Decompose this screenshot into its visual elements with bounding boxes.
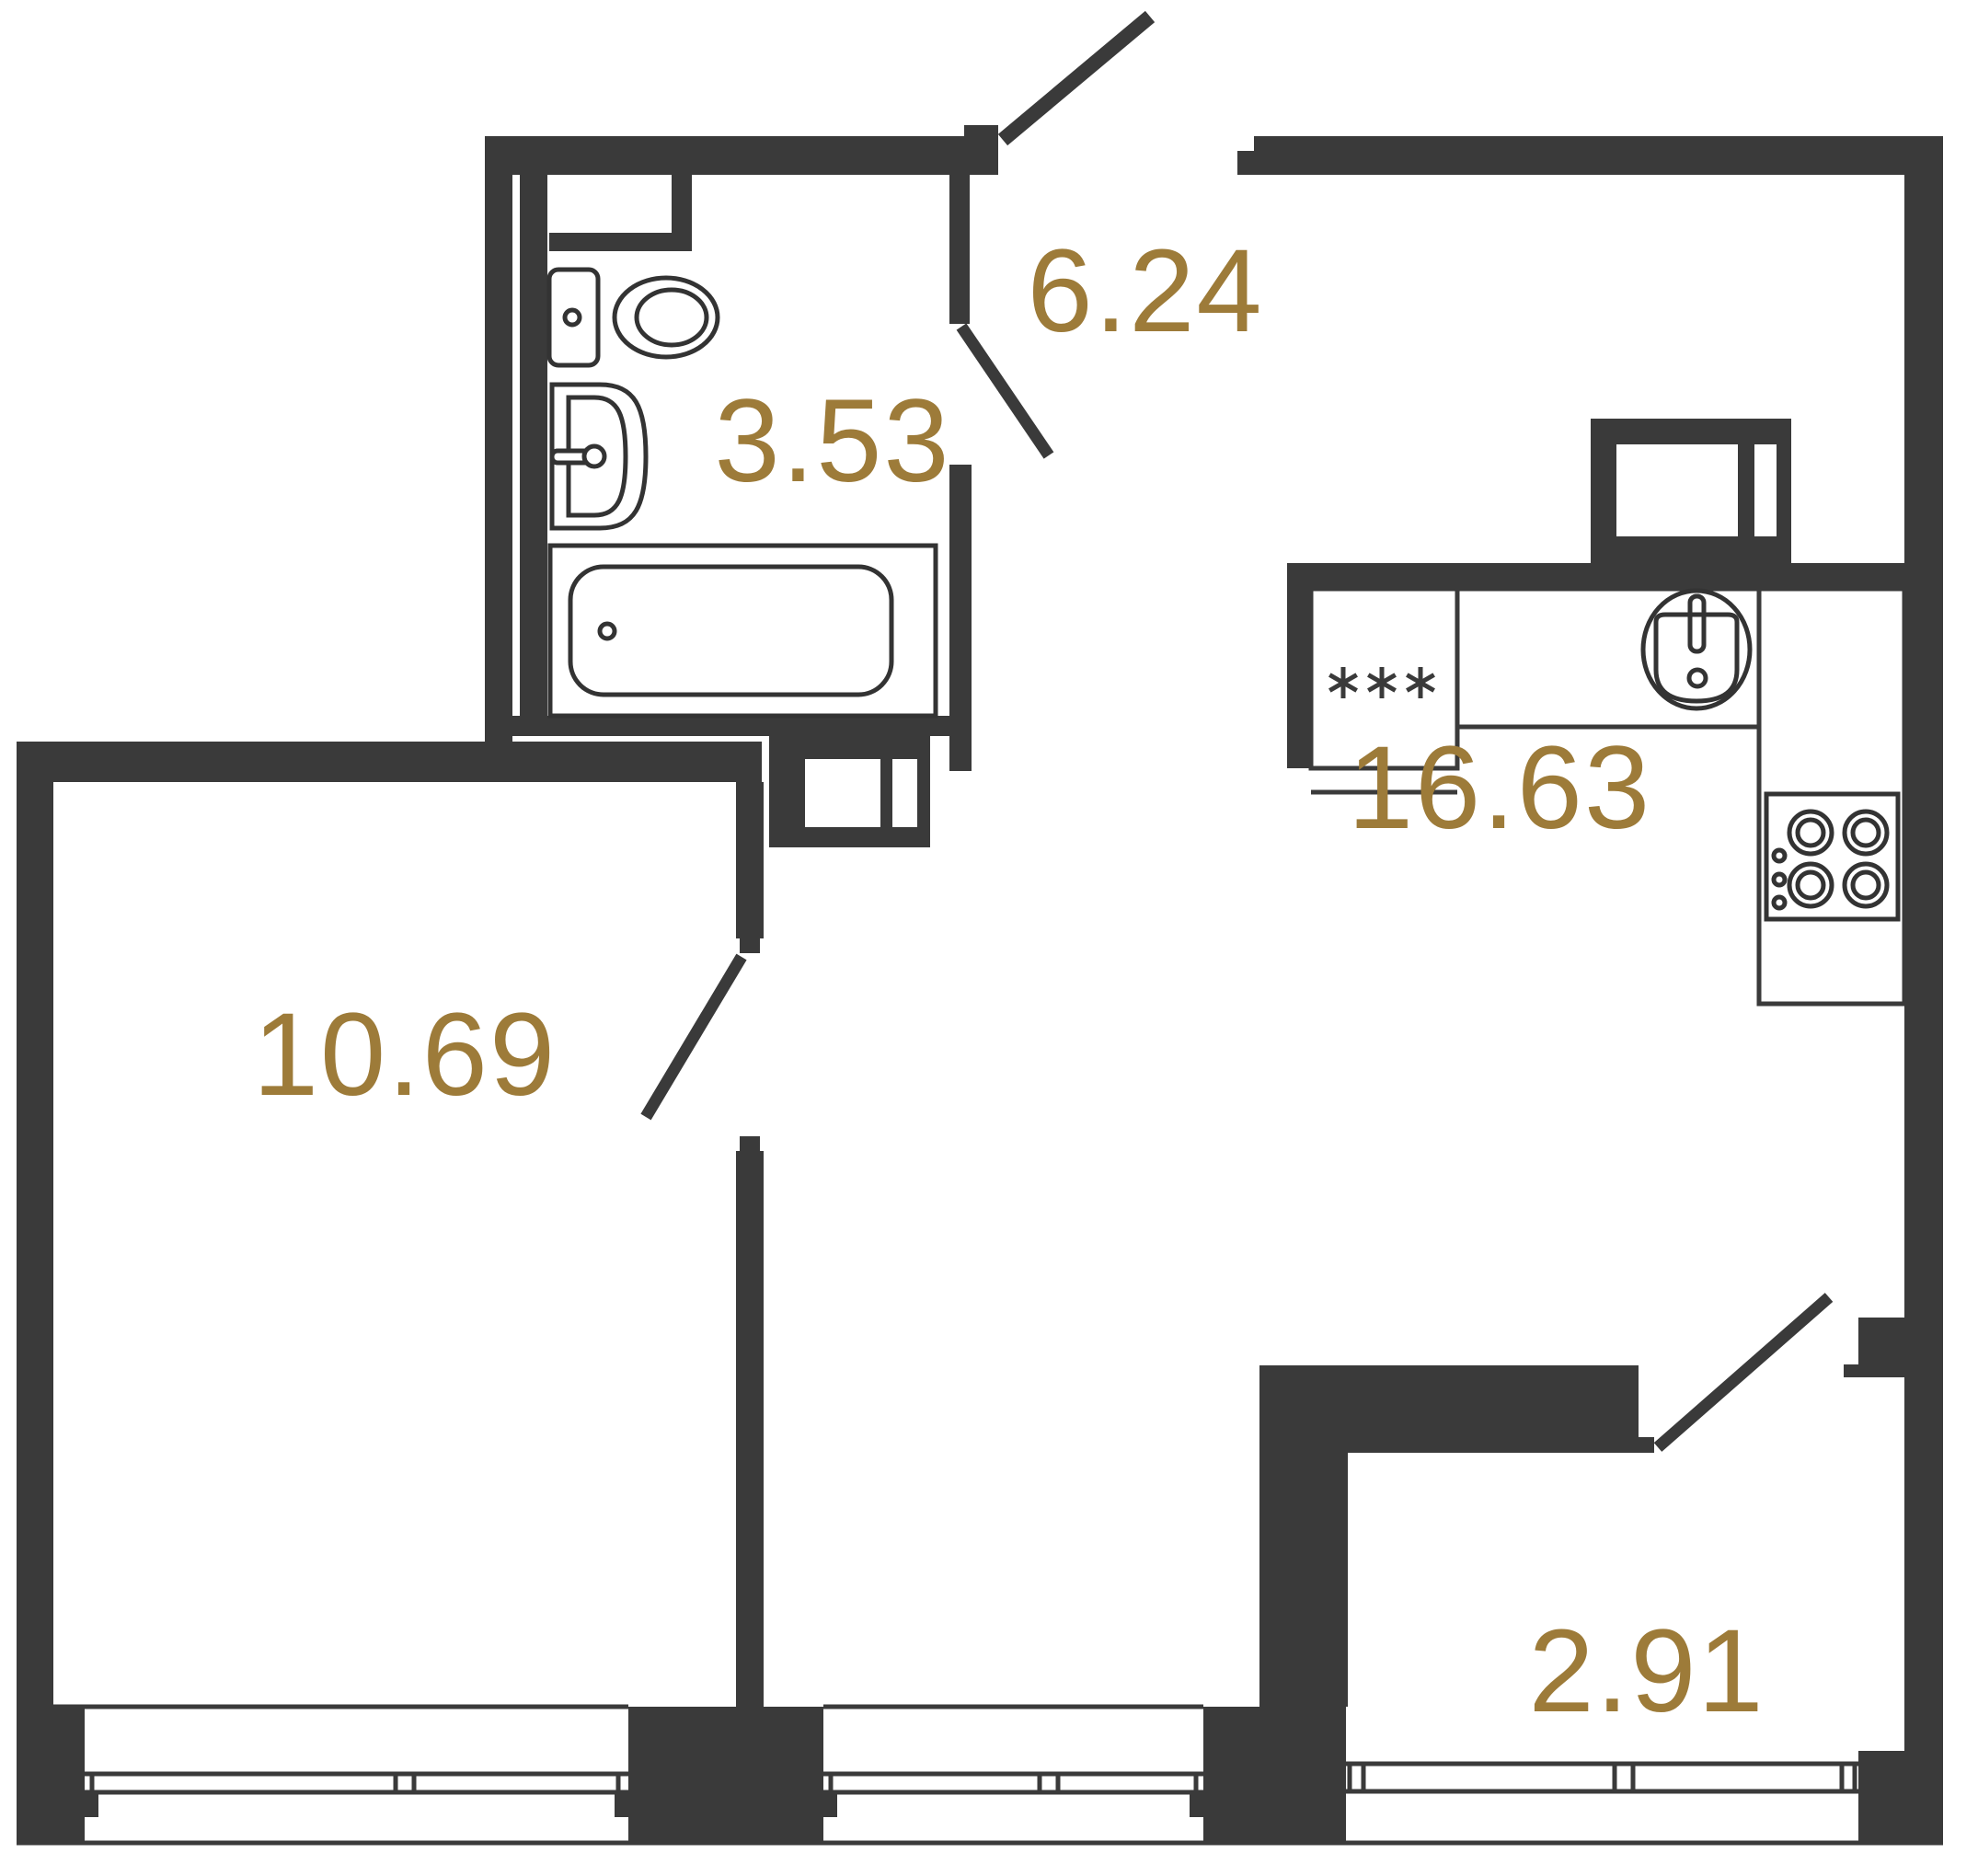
window-room xyxy=(85,1774,628,1792)
entrance-door-leaf xyxy=(1003,17,1150,140)
wall-bath-partition-left xyxy=(520,175,547,716)
wall-balcony-right-stub xyxy=(1858,1318,1904,1377)
wall-divider-lower-jamb xyxy=(740,1136,760,1151)
bathtub-icon xyxy=(550,546,936,716)
label-hallway-area: 6.24 xyxy=(1027,225,1263,357)
label-bathroom-area: 3.53 xyxy=(714,375,950,507)
walls xyxy=(17,125,1943,1845)
wall-bath-bottom xyxy=(512,716,972,736)
room-door-leaf xyxy=(646,957,742,1117)
balcony-door-leaf xyxy=(1658,1297,1829,1447)
floor-plan: 6.24 3.53 16.63 10.69 2.91 xyxy=(0,0,1978,1876)
wall-top-left xyxy=(485,136,998,175)
wall-balcony-door-jamb xyxy=(1639,1437,1654,1453)
wall-divider-lower xyxy=(736,1151,764,1707)
entrance-jamb-notch xyxy=(1237,136,1254,151)
window-kitchen xyxy=(823,1774,1203,1792)
wall-room-top xyxy=(17,742,762,782)
kitchen-sink-icon xyxy=(1643,591,1750,708)
pier-tab-3 xyxy=(823,1792,837,1817)
pier-bottom-middle xyxy=(628,1707,823,1845)
label-balcony-area: 2.91 xyxy=(1528,1606,1765,1737)
wall-left-outer xyxy=(17,782,53,1705)
washing-machine-icon xyxy=(1591,419,1791,563)
duct-shaft-cavity-2 xyxy=(892,759,917,827)
wall-divider-upper xyxy=(736,782,764,938)
pier-tab-2 xyxy=(615,1792,628,1817)
wall-bath-right-upper xyxy=(949,175,970,324)
label-kitchen-living-area: 16.63 xyxy=(1348,722,1651,854)
toilet-icon xyxy=(549,270,718,365)
entrance-jamb-tab xyxy=(964,125,998,138)
wall-divider-upper-jamb xyxy=(740,938,760,953)
area-labels: 6.24 3.53 16.63 10.69 2.91 xyxy=(253,225,1765,1737)
cooktop-icon xyxy=(1766,794,1898,919)
wall-right-outer xyxy=(1904,175,1943,1845)
pier-tab-4 xyxy=(1190,1792,1203,1817)
wall-niche-bottom xyxy=(549,233,692,251)
wall-bath-right-lower xyxy=(949,465,972,771)
pier-tab-1 xyxy=(85,1792,98,1817)
pier-bottom-right xyxy=(1858,1751,1943,1845)
wall-kitchen-back xyxy=(1287,563,1904,589)
wall-niche-right xyxy=(672,175,692,233)
pier-bottom-left xyxy=(17,1705,85,1845)
duct-shaft-cavity-1 xyxy=(805,759,880,827)
label-room-area: 10.69 xyxy=(253,989,557,1121)
wall-balcony-top xyxy=(1259,1365,1639,1453)
pier-balcony-left xyxy=(1203,1707,1346,1845)
wall-top-right xyxy=(1237,136,1943,175)
wall-balcony-right-stub-notch xyxy=(1844,1364,1858,1377)
wall-bath-outer-left xyxy=(485,175,512,742)
wall-balcony-left xyxy=(1259,1453,1348,1707)
kitchen-fixtures xyxy=(1311,419,1904,1004)
wash-basin-icon xyxy=(552,385,646,528)
wall-kitchen-partition xyxy=(1287,589,1311,768)
window-balcony xyxy=(1346,1764,1858,1791)
